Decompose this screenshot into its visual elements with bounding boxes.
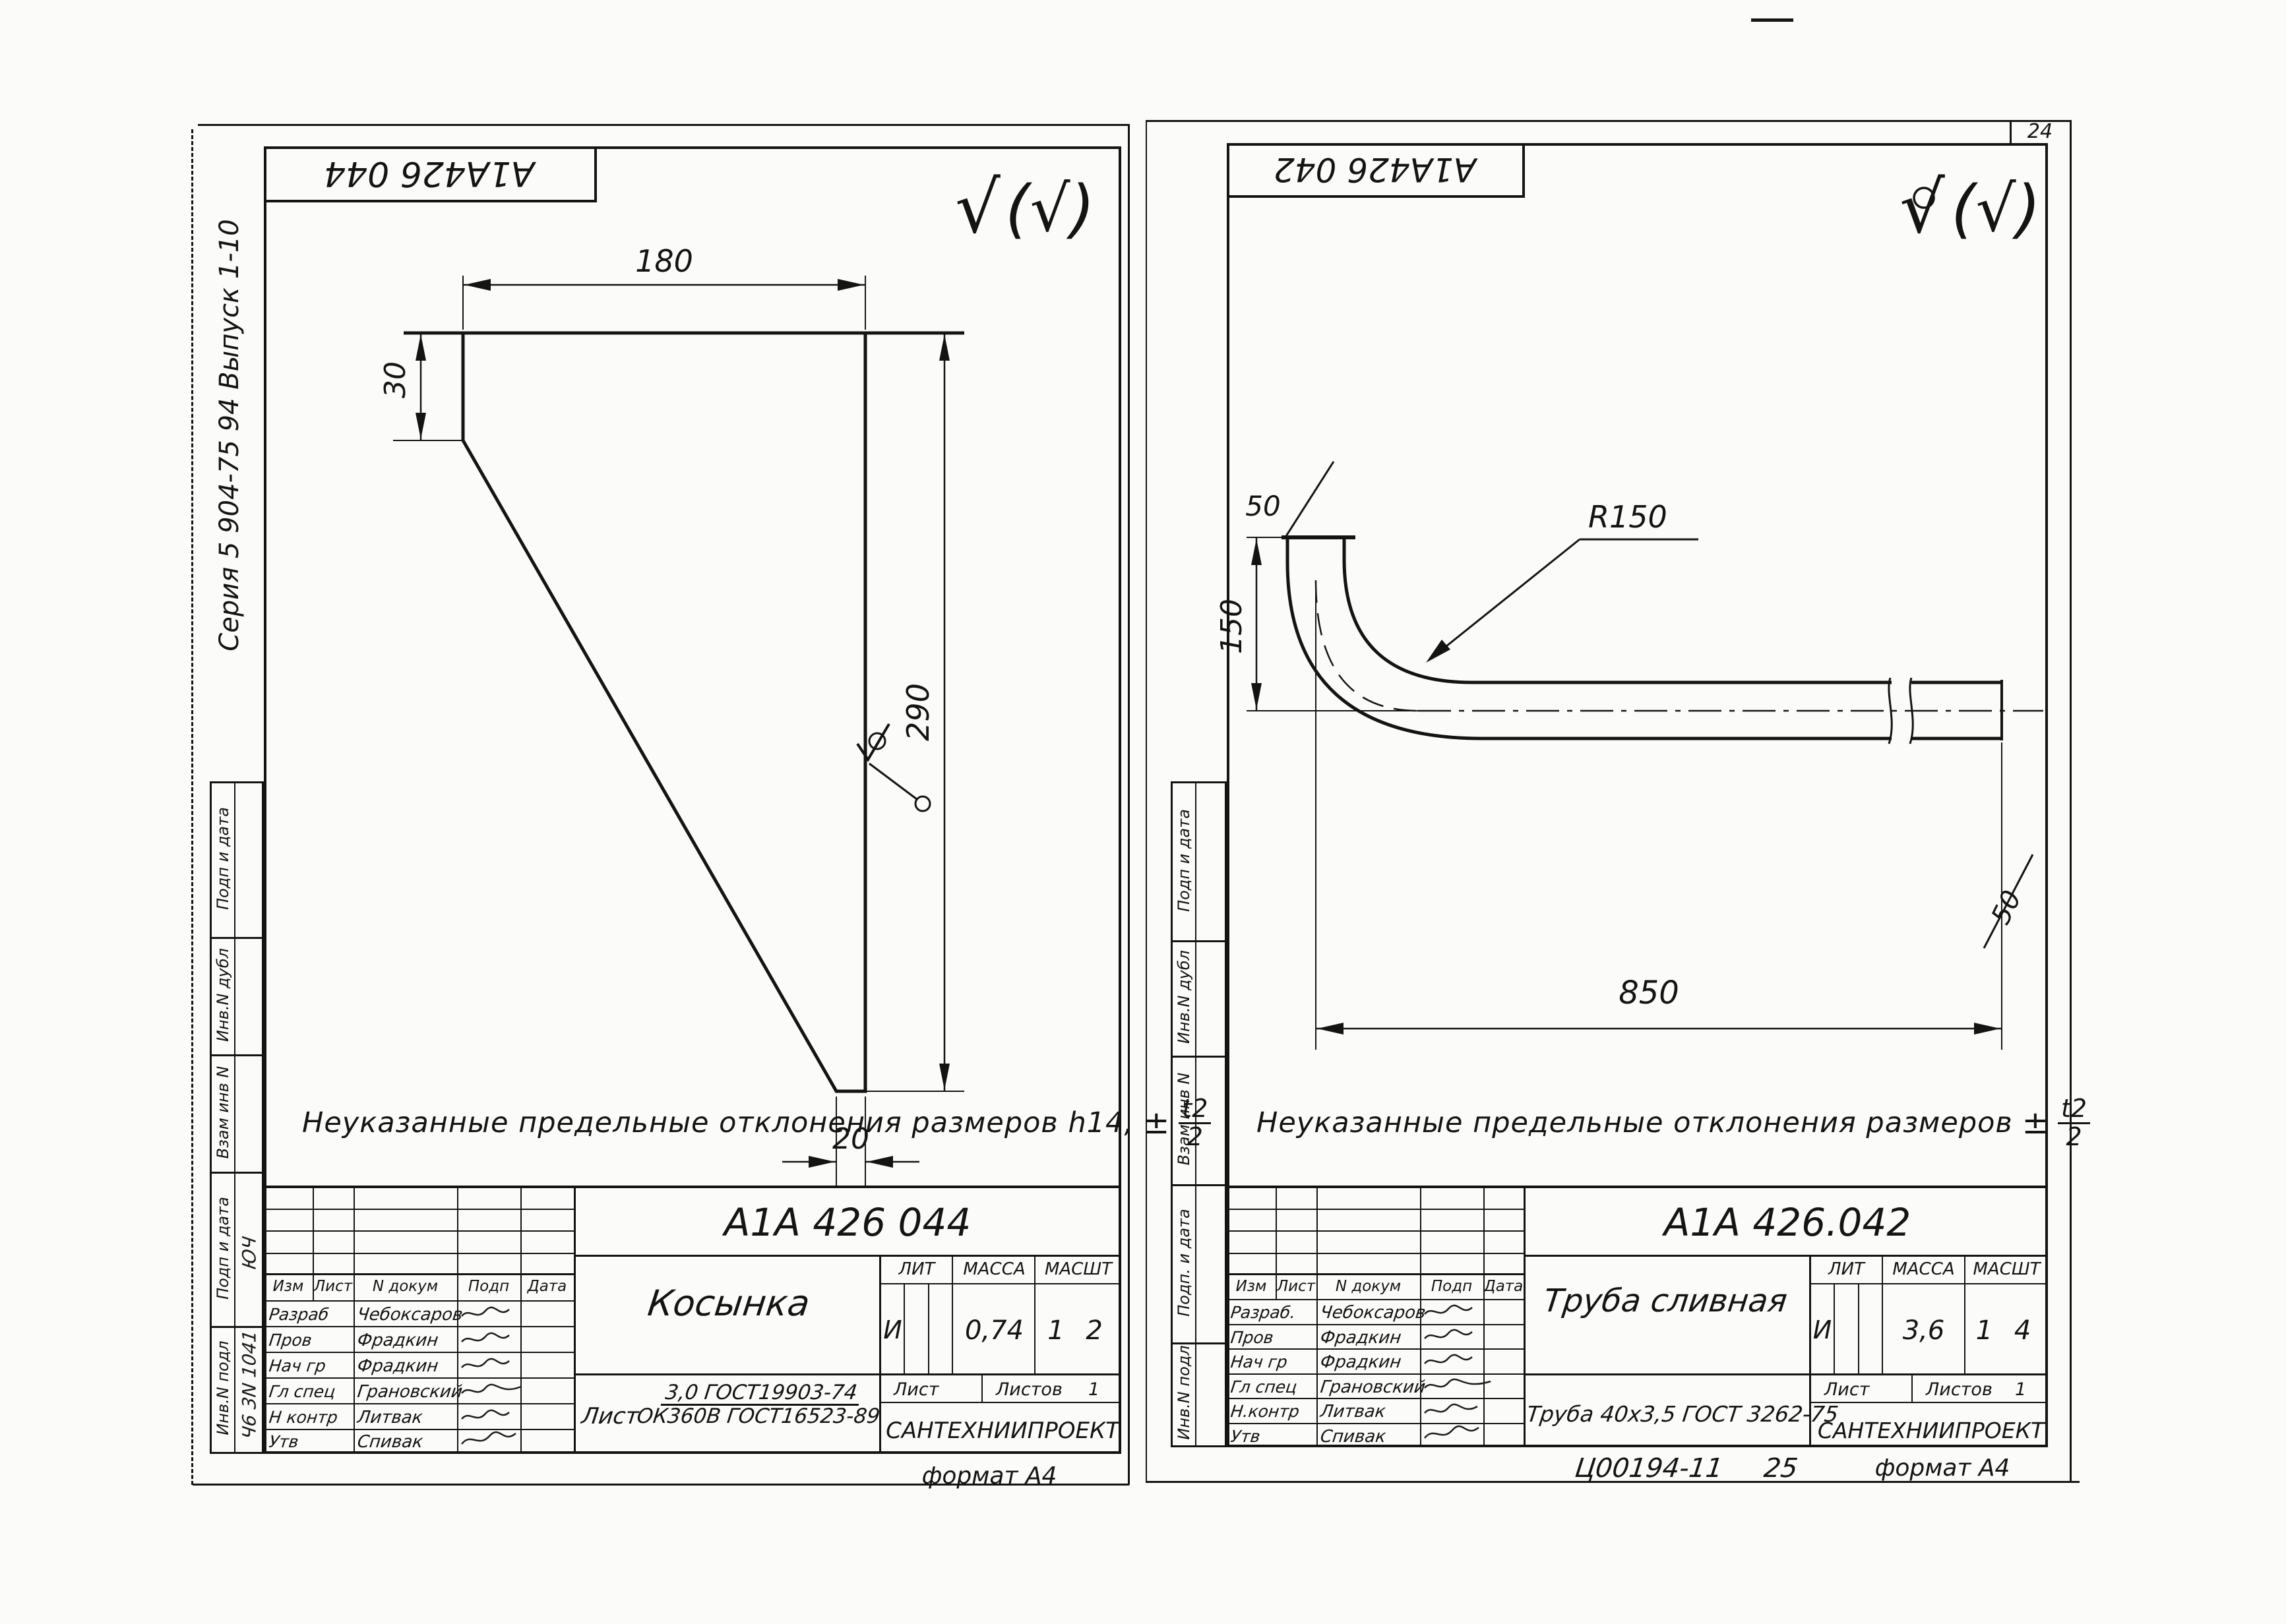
tb-sign-header-izm: Изм <box>1227 1278 1276 1295</box>
fraction-numerator: t2 <box>1179 1096 1211 1124</box>
tb-line <box>264 1352 574 1353</box>
tb-row-name: Грановский <box>356 1382 464 1402</box>
tb-row-name: Фрадкин <box>356 1356 439 1376</box>
tb-row-role: Нач гр <box>268 1356 326 1375</box>
tb-row-name: Спивак <box>1319 1427 1387 1447</box>
tb-row-name: Литвак <box>356 1408 423 1428</box>
tb-line <box>1227 1230 1524 1232</box>
tb-material-prefix: Лист <box>580 1403 640 1429</box>
right-code-stamp-box: А1А426 042 <box>1227 143 1525 198</box>
tb-sheets-count: 1 <box>2015 1379 2026 1400</box>
tb-row-role: Разраб. <box>1229 1303 1297 1322</box>
tb-line <box>1227 1398 1524 1399</box>
margin-divider <box>1173 1184 1225 1186</box>
tb-sign-header-doc: N докум <box>354 1278 457 1295</box>
tb-sign-header-list: Лист <box>313 1278 354 1295</box>
tb-line <box>1227 1186 2048 1188</box>
tb-line <box>264 1377 574 1379</box>
tb-line <box>574 1255 1121 1257</box>
margin-label: Подп и дата <box>214 807 232 910</box>
tb-line <box>1227 1324 1524 1325</box>
tb-row-name: Фрадкин <box>1319 1352 1402 1372</box>
tb-line <box>981 1375 983 1403</box>
tb-lit-header: ЛИТ <box>880 1259 953 1279</box>
tb-row-role: Пров <box>1229 1328 1274 1347</box>
tb-row-role: Утв <box>268 1432 299 1451</box>
fraction-denominator: 2 <box>1187 1124 1203 1151</box>
note-fraction: t2 2 <box>1179 1096 1211 1151</box>
tb-sign-header-sign: Подп <box>457 1278 520 1295</box>
margin-label: Инв.N подл <box>1175 1345 1193 1439</box>
tb-line <box>1227 1299 1524 1300</box>
tb-material-fraction: 3,0 ГОСТ19903-74 ОК360В ГОСТ16523-89 <box>636 1382 884 1427</box>
tb-row-name: Спивак <box>356 1432 424 1452</box>
tb-row-name: Грановский <box>1319 1377 1427 1397</box>
tb-organization: САНТЕХНИИПРОЕКТ <box>1814 1418 2048 1443</box>
left-code-stamp-box: А1А426 044 <box>264 146 597 202</box>
margin-label: Инв.N дубл <box>214 948 232 1042</box>
margin-divider <box>1173 1342 1225 1344</box>
fold-mark <box>1751 18 1793 22</box>
tb-sheets-header: Листов <box>996 1379 1063 1400</box>
tb-sign-header-date: Дата <box>520 1278 574 1295</box>
tb-organization: САНТЕХНИИПРОЕКТ <box>884 1418 1121 1444</box>
tb-sheet-header: Лист <box>894 1379 939 1400</box>
tb-line <box>1227 1373 1524 1375</box>
tb-row-role: Гл спец <box>1229 1377 1298 1397</box>
footer-page: 25 <box>1752 1453 1809 1484</box>
note-text: Неуказанные предельные отклонения размер… <box>1256 1106 2013 1139</box>
tb-lit-header: ЛИТ <box>1811 1259 1882 1279</box>
tb-designation: А1А 426.042 <box>1583 1200 1992 1245</box>
tb-line <box>1911 1375 1913 1403</box>
tb-sign-header-izm: Изм <box>264 1278 313 1295</box>
margin-handwriting-upper: ЮЧ <box>239 1235 261 1271</box>
tb-scale-header: МАСШТ <box>1035 1259 1121 1279</box>
tb-part-name: Труба сливная <box>1528 1282 1803 1319</box>
tb-scale-value: 1 4 <box>1965 1315 2048 1346</box>
format-label: формат А4 <box>917 1462 1062 1489</box>
format-label: формат А4 <box>1870 1455 2015 1482</box>
margin-divider <box>212 1054 262 1056</box>
tb-lit-value: И <box>880 1315 905 1344</box>
tb-line <box>1316 1186 1318 1447</box>
tb-sign-header-doc: N докум <box>1316 1278 1420 1295</box>
scanned-drawing-page: 24 А1А426 044 А1А426 042 Серия 5 904-75 … <box>0 0 2286 1624</box>
tb-row-name: Литвак <box>1319 1402 1386 1422</box>
tb-row-role: Н.контр <box>1229 1402 1300 1421</box>
tb-line <box>1524 1255 2048 1257</box>
tb-line <box>1858 1283 1859 1375</box>
tb-row-role: Утв <box>1229 1427 1261 1446</box>
tb-material: Труба 40х3,5 ГОСТ 3262-75 <box>1526 1401 1809 1427</box>
plus-minus: ± <box>1143 1104 1169 1141</box>
margin-label: Инв.N подл <box>214 1340 232 1435</box>
tb-line <box>1227 1273 1524 1275</box>
margin-handwriting-lower: Ч6 3N 1041 <box>239 1329 261 1440</box>
tb-row-role: Пров <box>268 1331 313 1350</box>
right-sheet-left-edge <box>1146 120 1147 1482</box>
left-sheet-right-edge <box>1128 124 1130 1485</box>
tb-line <box>264 1209 574 1210</box>
left-sheet-top-edge <box>198 124 1129 126</box>
margin-divider <box>212 1326 262 1328</box>
margin-divider <box>1173 1056 1225 1058</box>
left-code-stamp: А1А426 044 <box>324 154 534 193</box>
right-frame <box>1227 143 2048 1447</box>
left-frame <box>264 146 1121 1454</box>
tb-line <box>1227 1423 1524 1424</box>
tb-row-name: Чебоксаров <box>356 1305 464 1325</box>
tb-scale-value: 1 2 <box>1035 1315 1121 1346</box>
tb-line <box>1834 1283 1835 1375</box>
plus-minus: ± <box>2022 1104 2049 1141</box>
left-tolerance-note: Неуказанные предельные отклонения размер… <box>302 1096 1211 1151</box>
tb-line <box>264 1230 574 1232</box>
margin-label: Подп и дата <box>1175 809 1193 912</box>
tb-mass-header: МАССА <box>1883 1259 1964 1279</box>
tb-scale-header: МАСШТ <box>1965 1259 2048 1279</box>
right-sheet-right-edge <box>2070 120 2072 1482</box>
tb-row-name: Чебоксаров <box>1319 1303 1427 1323</box>
tb-line <box>264 1273 574 1275</box>
margin-divider <box>212 1172 262 1174</box>
right-code-stamp: А1А426 042 <box>1274 150 1476 189</box>
tb-sheets-count: 1 <box>1088 1379 1099 1400</box>
note-fraction: t2 2 <box>2058 1096 2090 1151</box>
fraction-numerator: t2 <box>2058 1096 2090 1124</box>
tb-line <box>1524 1373 2048 1375</box>
margin-divider <box>1173 940 1225 942</box>
tb-row-role: Разраб <box>268 1305 330 1324</box>
note-text: Неуказанные предельные отклонения размер… <box>302 1106 1134 1139</box>
tb-sign-header-sign: Подп <box>1420 1278 1483 1295</box>
tb-line <box>354 1186 355 1454</box>
tb-row-role: Гл спец <box>268 1382 336 1401</box>
right-sheet-top-edge <box>1146 120 2071 122</box>
tb-row-role: Н контр <box>268 1408 338 1427</box>
tb-line <box>928 1283 929 1375</box>
tb-line <box>1227 1209 1524 1210</box>
page-number: 24 <box>2010 120 2070 144</box>
left-sheet-left-edge <box>191 129 193 1485</box>
tb-line <box>880 1402 1121 1403</box>
tb-row-name: Фрадкин <box>1319 1328 1402 1348</box>
tb-line <box>264 1403 574 1404</box>
tb-line <box>264 1326 574 1327</box>
margin-label: Инв.N дубл <box>1175 950 1193 1044</box>
doc-number: Ц00194-11 <box>1568 1453 1730 1484</box>
tb-part-name: Косынка <box>578 1282 880 1324</box>
material-numerator: 3,0 ГОСТ19903-74 <box>661 1382 862 1406</box>
tb-sheet-header: Лист <box>1824 1379 1869 1400</box>
tb-designation: А1А 426 044 <box>660 1200 1035 1245</box>
tb-sign-header-list: Лист <box>1276 1278 1316 1295</box>
tb-line <box>264 1300 574 1302</box>
tb-sheets-header: Листов <box>1926 1379 1993 1400</box>
tb-row-role: Нач гр <box>1229 1352 1288 1371</box>
tb-line <box>1227 1253 1524 1254</box>
series-label: Серия 5 904-75 94 Выпуск 1-10 <box>214 219 245 651</box>
tb-line <box>1811 1402 2048 1403</box>
tb-mass-value: 0,74 <box>953 1315 1035 1346</box>
tb-line <box>1227 1348 1524 1350</box>
material-denominator: ОК360В ГОСТ16523-89 <box>636 1406 881 1428</box>
margin-label: Подп. и дата <box>1175 1209 1193 1317</box>
tb-line <box>880 1283 1121 1284</box>
right-tolerance-note: Неуказанные предельные отклонения размер… <box>1256 1096 2090 1151</box>
tb-sign-header-date: Дата <box>1483 1278 1524 1295</box>
tb-lit-value: И <box>1811 1315 1834 1344</box>
fraction-denominator: 2 <box>2066 1124 2082 1151</box>
tb-row-name: Фрадкин <box>356 1331 439 1350</box>
tb-line <box>264 1429 574 1430</box>
margin-divider <box>212 937 262 939</box>
tb-line <box>574 1373 1121 1375</box>
tb-line <box>574 1186 576 1454</box>
tb-line <box>1811 1283 2048 1284</box>
tb-line <box>264 1186 1121 1188</box>
tb-line <box>1524 1186 1526 1447</box>
margin-label: Взам инв N <box>214 1066 232 1159</box>
tb-line <box>520 1186 522 1454</box>
margin-label: Подп и дата <box>214 1197 232 1300</box>
tb-mass-value: 3,6 <box>1883 1315 1964 1346</box>
tb-mass-header: МАССА <box>953 1259 1035 1279</box>
margin-divider <box>234 783 235 1452</box>
tb-line <box>264 1253 574 1254</box>
tb-line <box>1483 1186 1485 1447</box>
